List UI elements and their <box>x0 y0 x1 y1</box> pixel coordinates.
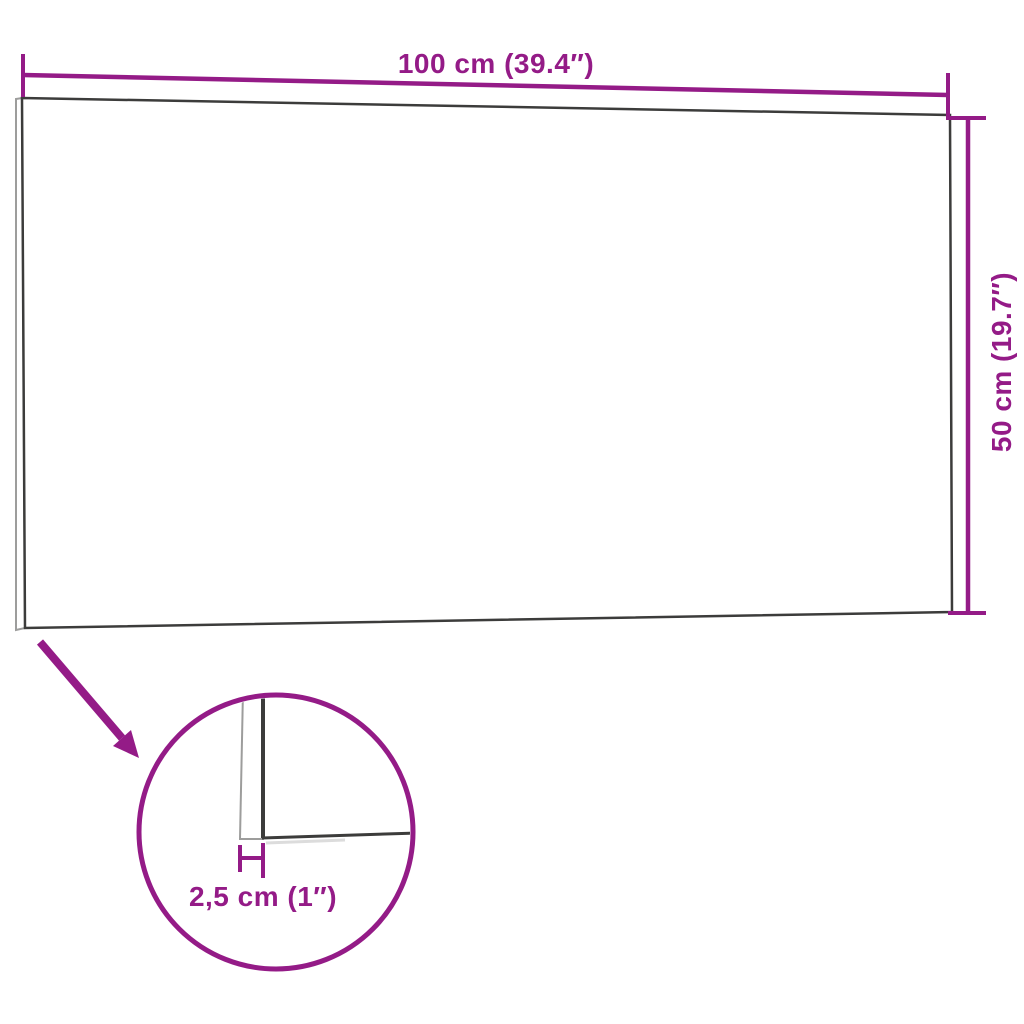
diagram-canvas: 100 cm (39.4″) 50 cm (19.7″) <box>0 0 1024 1024</box>
panel-front-face <box>22 98 952 628</box>
detail-circle <box>139 695 413 969</box>
arrow-shaft <box>40 642 122 738</box>
dimension-diagram: 100 cm (39.4″) 50 cm (19.7″) <box>0 0 1024 1024</box>
zoom-callout-arrow <box>40 642 139 758</box>
height-dimension: 50 cm (19.7″) <box>948 118 1017 613</box>
thickness-detail-view: 2,5 cm (1″) <box>139 688 416 969</box>
width-dimension-label: 100 cm (39.4″) <box>398 48 594 79</box>
thickness-dimension-label: 2,5 cm (1″) <box>189 881 337 912</box>
height-dimension-label: 50 cm (19.7″) <box>986 272 1017 452</box>
panel-drawing <box>16 98 952 630</box>
